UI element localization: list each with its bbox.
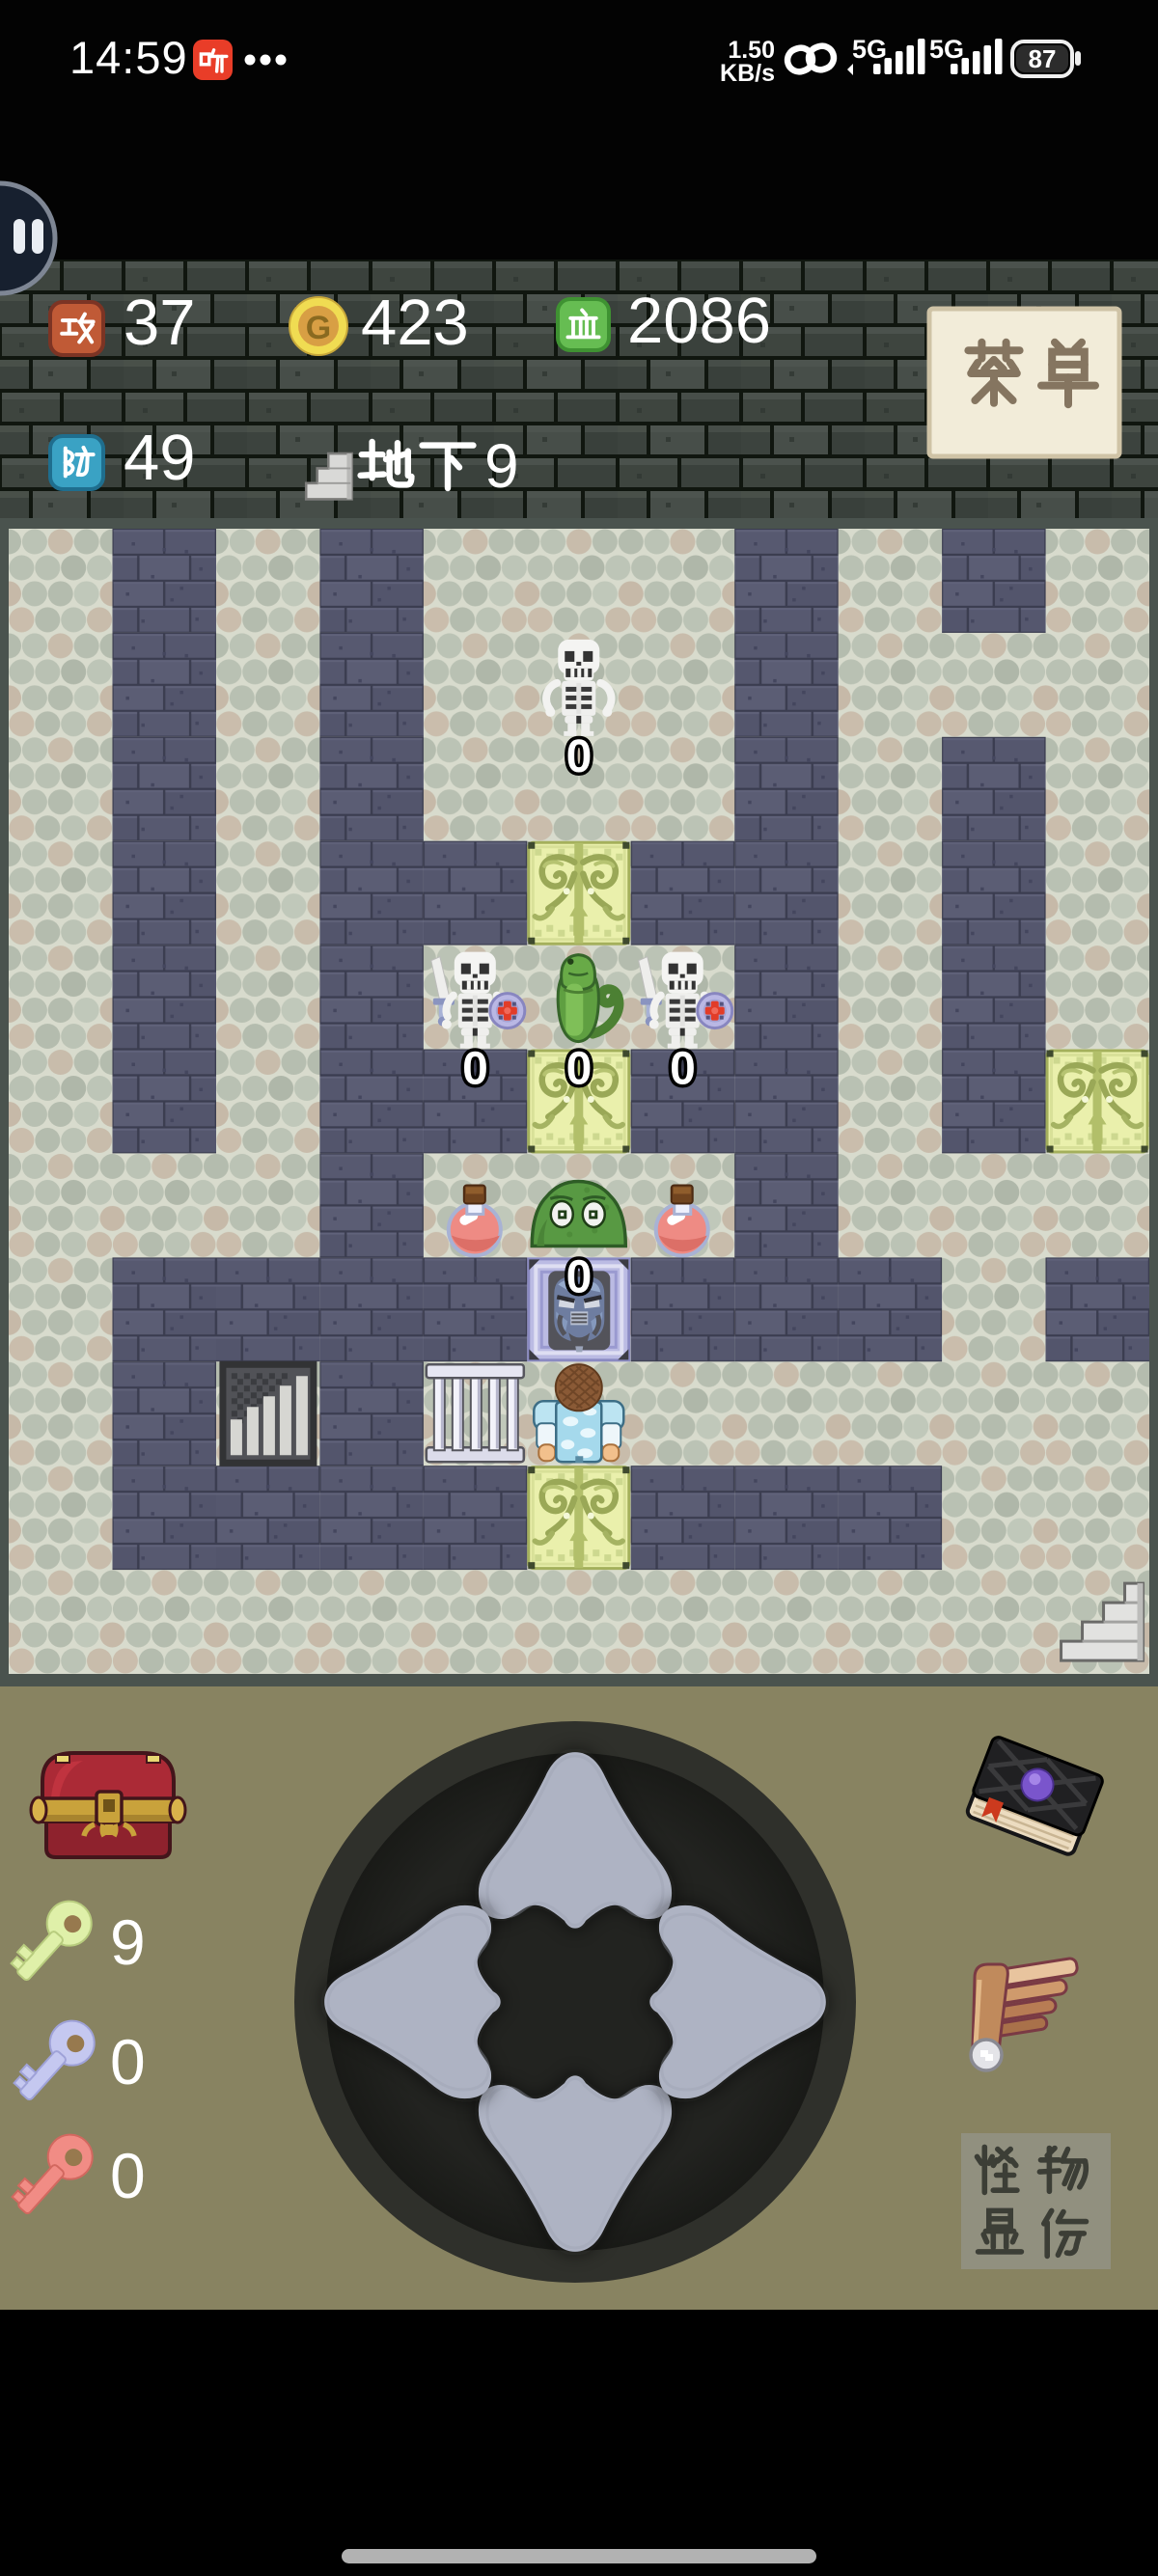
svg-text:G: G — [306, 310, 331, 346]
svg-text:0: 0 — [566, 731, 593, 782]
svg-text:0: 0 — [462, 1044, 488, 1095]
svg-text:9: 9 — [484, 431, 519, 501]
svg-text:0: 0 — [110, 2026, 146, 2097]
svg-text:0: 0 — [566, 1044, 593, 1095]
svg-text:87: 87 — [1029, 44, 1057, 73]
svg-text:KB/s: KB/s — [720, 60, 775, 87]
svg-text:423: 423 — [361, 287, 469, 359]
svg-text:5G: 5G — [852, 35, 887, 64]
svg-text:49: 49 — [124, 422, 196, 494]
svg-text:37: 37 — [124, 287, 196, 359]
svg-text:0: 0 — [670, 1044, 696, 1095]
svg-text:9: 9 — [110, 1906, 146, 1978]
svg-text:14:59: 14:59 — [69, 32, 188, 83]
svg-text:0: 0 — [110, 2140, 146, 2211]
svg-text:0: 0 — [566, 1251, 593, 1302]
svg-text:2086: 2086 — [627, 285, 771, 357]
svg-text:5G: 5G — [929, 35, 964, 64]
